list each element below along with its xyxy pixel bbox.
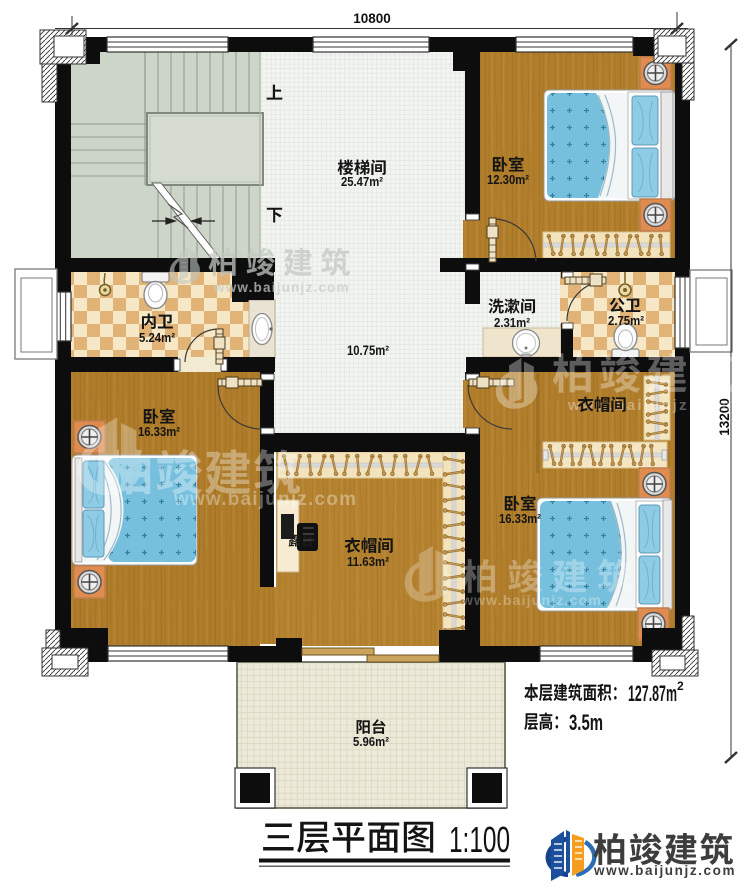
svg-text:25.47m²: 25.47m²: [341, 174, 384, 189]
svg-text:11.63m²: 11.63m²: [347, 554, 390, 569]
svg-text:www.baijunjz.com: www.baijunjz.com: [593, 863, 736, 878]
svg-text:16.33m²: 16.33m²: [499, 511, 542, 526]
svg-text:2.31m²: 2.31m²: [494, 315, 531, 330]
svg-text:10.75m²: 10.75m²: [347, 343, 389, 358]
svg-text:www.baijunjz.com: www.baijunjz.com: [461, 592, 602, 608]
svg-text:12.30m²: 12.30m²: [487, 172, 530, 187]
svg-text:1:100: 1:100: [449, 819, 510, 860]
svg-text:www.baijunjz.com: www.baijunjz.com: [173, 489, 357, 510]
svg-text:10800: 10800: [353, 11, 391, 26]
svg-text:5.96m²: 5.96m²: [353, 735, 389, 749]
svg-text:www.baijunjz.com: www.baijunjz.com: [213, 280, 350, 295]
svg-text:5.24m²: 5.24m²: [139, 330, 176, 345]
svg-text:2.75m²: 2.75m²: [608, 313, 645, 328]
svg-text:3.5m: 3.5m: [569, 710, 603, 735]
svg-text:2: 2: [677, 679, 684, 693]
svg-text:127.87m: 127.87m: [628, 681, 677, 706]
svg-text:16.33m²: 16.33m²: [138, 424, 181, 439]
